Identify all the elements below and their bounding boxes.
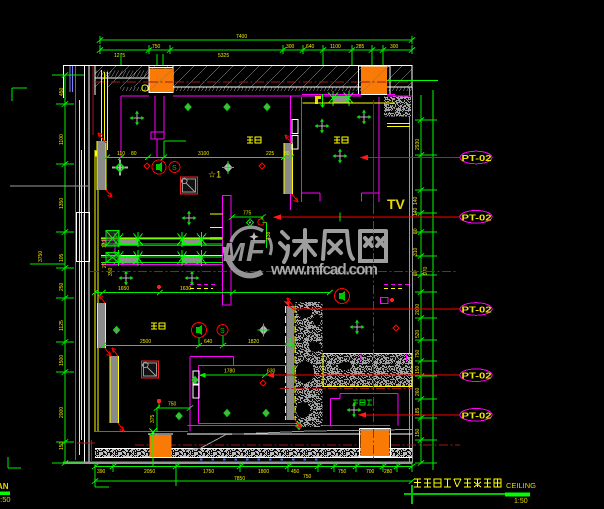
svg-text:105: 105 — [59, 253, 65, 262]
svg-text:7850: 7850 — [234, 476, 245, 482]
svg-text:TV: TV — [387, 196, 406, 212]
svg-text:PT-02: PT-02 — [462, 410, 493, 420]
svg-text:1100: 1100 — [330, 44, 341, 50]
svg-text:7400: 7400 — [236, 34, 247, 40]
svg-text:450: 450 — [291, 469, 300, 475]
svg-text:20: 20 — [102, 262, 108, 268]
svg-text:80: 80 — [284, 151, 290, 157]
svg-text:140: 140 — [413, 196, 419, 205]
svg-text:1350: 1350 — [59, 198, 65, 209]
svg-text:1750: 1750 — [203, 469, 214, 475]
svg-text:3100: 3100 — [198, 151, 209, 157]
svg-text:1:50: 1:50 — [514, 498, 528, 505]
svg-text:110: 110 — [117, 151, 125, 157]
svg-text:750: 750 — [168, 402, 177, 408]
svg-text:640: 640 — [204, 339, 213, 345]
svg-text:1125: 1125 — [59, 320, 65, 331]
svg-text:1650: 1650 — [118, 286, 129, 292]
svg-text:1820: 1820 — [248, 339, 259, 345]
svg-text:PT-02: PT-02 — [462, 153, 493, 163]
svg-text:150: 150 — [415, 428, 421, 437]
svg-text:150: 150 — [415, 365, 421, 374]
svg-text:☆1: ☆1 — [208, 170, 221, 180]
svg-text:2930: 2930 — [415, 139, 421, 150]
svg-text:2000: 2000 — [59, 407, 65, 418]
svg-text:750: 750 — [415, 349, 421, 358]
svg-text:PT-02: PT-02 — [462, 305, 493, 315]
svg-text:1100: 1100 — [59, 134, 65, 145]
svg-text:AN: AN — [0, 482, 9, 491]
svg-text:1275: 1275 — [114, 53, 125, 59]
svg-text:520: 520 — [415, 329, 421, 338]
svg-text:260: 260 — [415, 387, 421, 396]
svg-text:225: 225 — [266, 151, 275, 157]
svg-text:285: 285 — [356, 44, 365, 50]
svg-text:150: 150 — [59, 441, 65, 450]
svg-text:700: 700 — [366, 469, 375, 475]
svg-text:www.mfcad.com: www.mfcad.com — [270, 262, 378, 279]
svg-text:1630: 1630 — [180, 286, 191, 292]
svg-text:PT-02: PT-02 — [462, 371, 493, 381]
svg-text:3750: 3750 — [38, 251, 44, 262]
svg-text:300: 300 — [286, 44, 295, 50]
svg-text:450: 450 — [59, 87, 65, 96]
svg-text:2050: 2050 — [144, 469, 155, 475]
svg-text:250: 250 — [59, 282, 65, 291]
svg-text:1780: 1780 — [224, 369, 235, 375]
svg-text:80: 80 — [413, 228, 419, 234]
svg-text:CEILING: CEILING — [506, 481, 536, 490]
svg-text:300: 300 — [390, 44, 399, 50]
svg-text:5325: 5325 — [218, 53, 229, 59]
svg-text:750: 750 — [303, 474, 312, 480]
svg-text:750: 750 — [338, 469, 347, 475]
svg-text:640: 640 — [306, 44, 315, 50]
svg-text:140: 140 — [413, 207, 419, 216]
svg-text:390: 390 — [97, 469, 106, 475]
svg-text:F: F — [246, 233, 266, 268]
svg-text:2500: 2500 — [140, 339, 151, 345]
svg-text:1500: 1500 — [59, 355, 65, 366]
svg-text:1800: 1800 — [258, 469, 269, 475]
svg-text:80: 80 — [131, 151, 137, 157]
svg-text:310: 310 — [413, 247, 419, 256]
svg-text:280: 280 — [384, 469, 393, 475]
svg-text:750: 750 — [152, 44, 161, 50]
svg-text:S: S — [172, 165, 177, 172]
svg-text:375: 375 — [150, 414, 156, 423]
svg-text:1:50: 1:50 — [0, 495, 11, 504]
svg-text:PT-02: PT-02 — [462, 212, 493, 222]
svg-text:775: 775 — [243, 211, 252, 217]
svg-text:S: S — [220, 328, 225, 335]
svg-text:970: 970 — [423, 266, 429, 275]
svg-text:M: M — [223, 237, 246, 267]
